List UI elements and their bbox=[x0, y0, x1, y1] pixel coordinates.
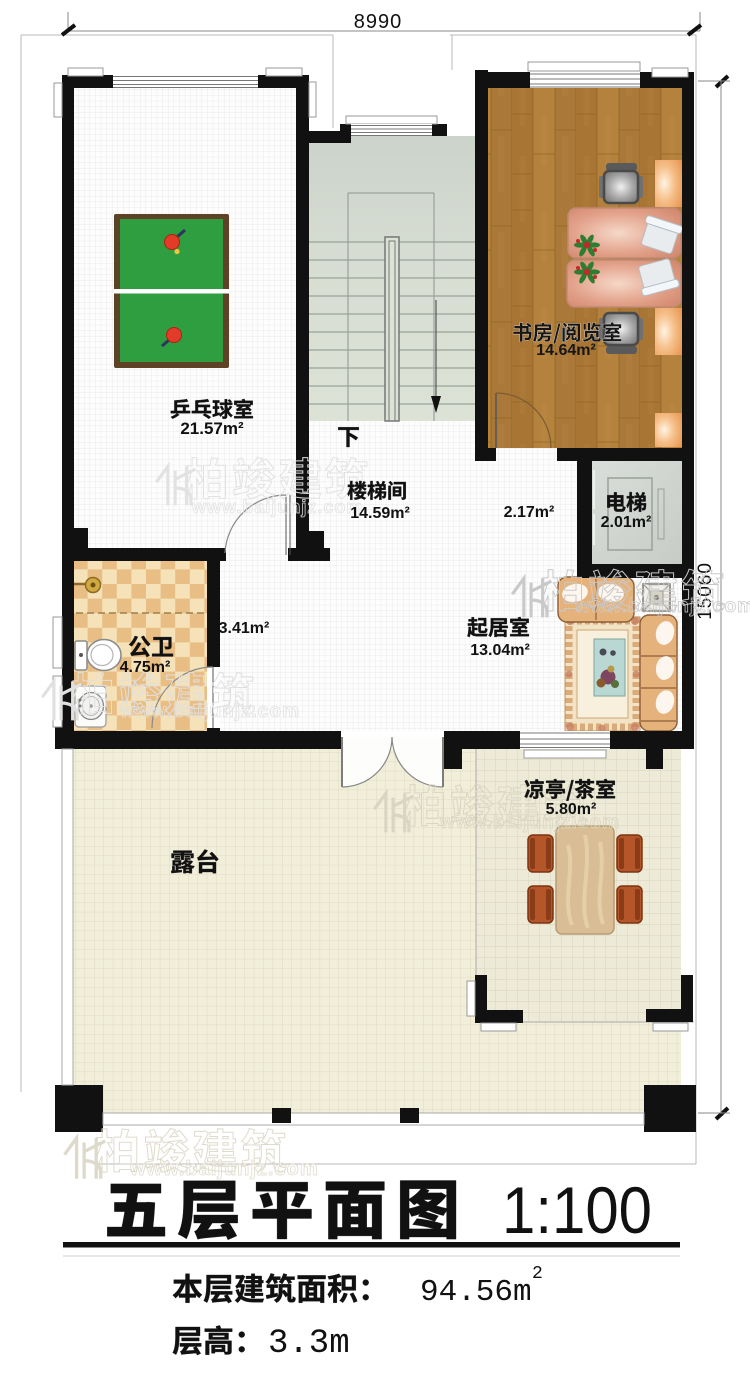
svg-text:2: 2 bbox=[532, 1264, 543, 1284]
svg-text:14.59m²: 14.59m² bbox=[350, 505, 410, 522]
svg-text:21.57m²: 21.57m² bbox=[180, 419, 244, 438]
svg-text:www.baijunjz.com: www.baijunjz.com bbox=[119, 701, 300, 722]
svg-text:14.64m²: 14.64m² bbox=[536, 342, 596, 359]
svg-text:8990: 8990 bbox=[354, 11, 403, 33]
svg-text:3.3m: 3.3m bbox=[268, 1325, 350, 1363]
svg-text:www.baijunjz.com: www.baijunjz.com bbox=[191, 497, 363, 517]
svg-text:13.04m²: 13.04m² bbox=[470, 642, 530, 659]
svg-text:3.41m²: 3.41m² bbox=[219, 620, 270, 637]
svg-text:2.01m²: 2.01m² bbox=[601, 514, 652, 531]
svg-text:2.17m²: 2.17m² bbox=[504, 504, 555, 521]
svg-text:5.80m²: 5.80m² bbox=[546, 801, 597, 818]
svg-text:94.56m: 94.56m bbox=[420, 1275, 532, 1310]
svg-text:4.75m²: 4.75m² bbox=[120, 659, 171, 676]
svg-text:1:100: 1:100 bbox=[502, 1173, 652, 1247]
svg-text:www.baijunjz.com: www.baijunjz.com bbox=[129, 1158, 319, 1180]
svg-text:www.baijunjz.com: www.baijunjz.com bbox=[574, 596, 750, 617]
